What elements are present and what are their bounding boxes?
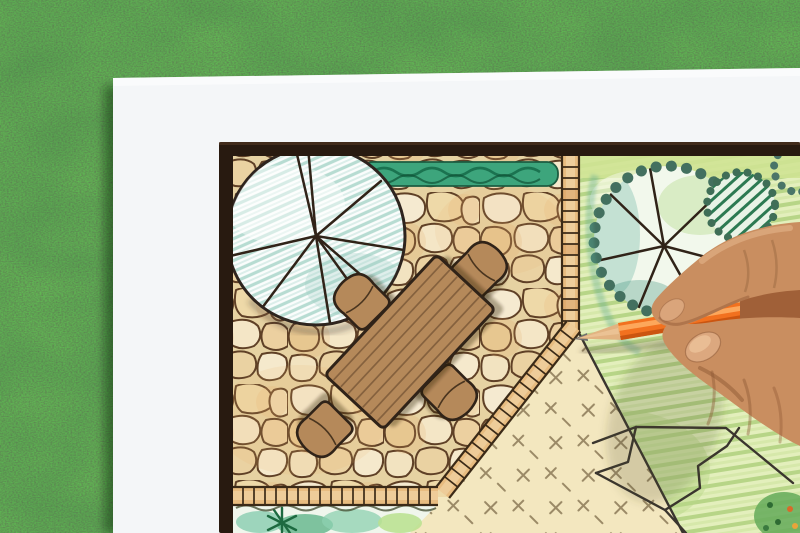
frame-highlight — [219, 142, 800, 145]
hedge-strip — [362, 162, 558, 186]
edging-vertical — [562, 156, 579, 333]
planting-bed — [233, 505, 437, 533]
bed-plant — [378, 513, 422, 533]
bed-plant — [322, 509, 382, 533]
edging-bottom — [232, 487, 438, 505]
scene-canvas — [0, 0, 800, 533]
photo-scene — [0, 0, 800, 533]
